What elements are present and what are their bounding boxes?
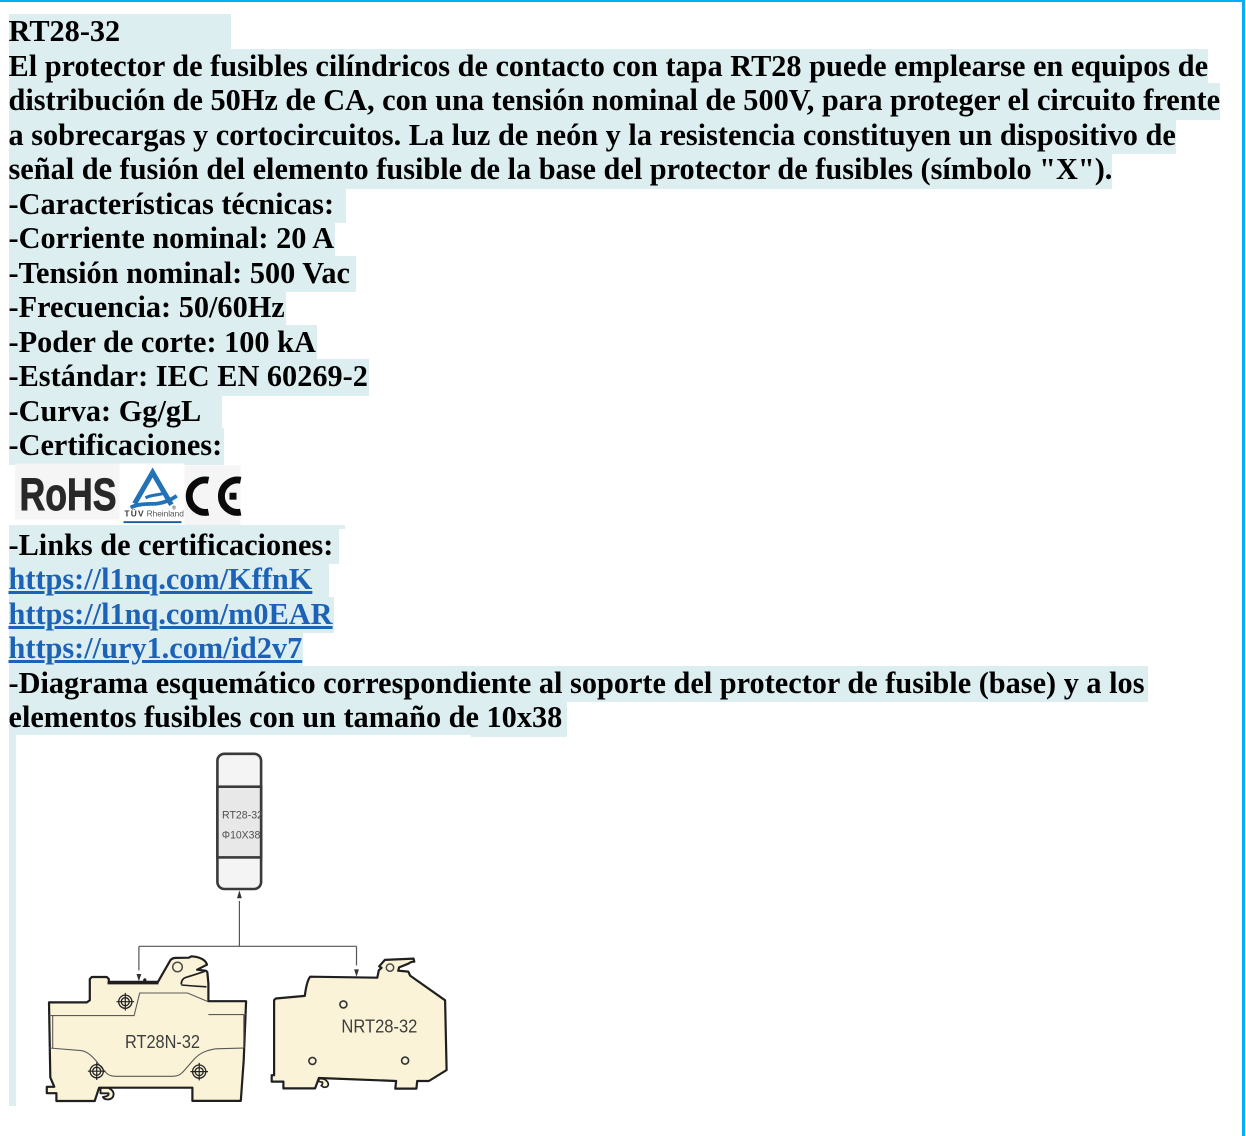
svg-text:®: ® — [172, 505, 176, 512]
svg-text:RT28-32: RT28-32 — [222, 809, 263, 821]
svg-text:Rheinland: Rheinland — [147, 508, 185, 518]
svg-text:RoHS: RoHS — [19, 469, 116, 520]
svg-text:TÜV: TÜV — [124, 508, 144, 518]
svg-text:RT28N-32: RT28N-32 — [125, 1031, 200, 1052]
svg-text:Φ10X38: Φ10X38 — [221, 829, 260, 841]
svg-text:NRT28-32: NRT28-32 — [341, 1016, 417, 1037]
